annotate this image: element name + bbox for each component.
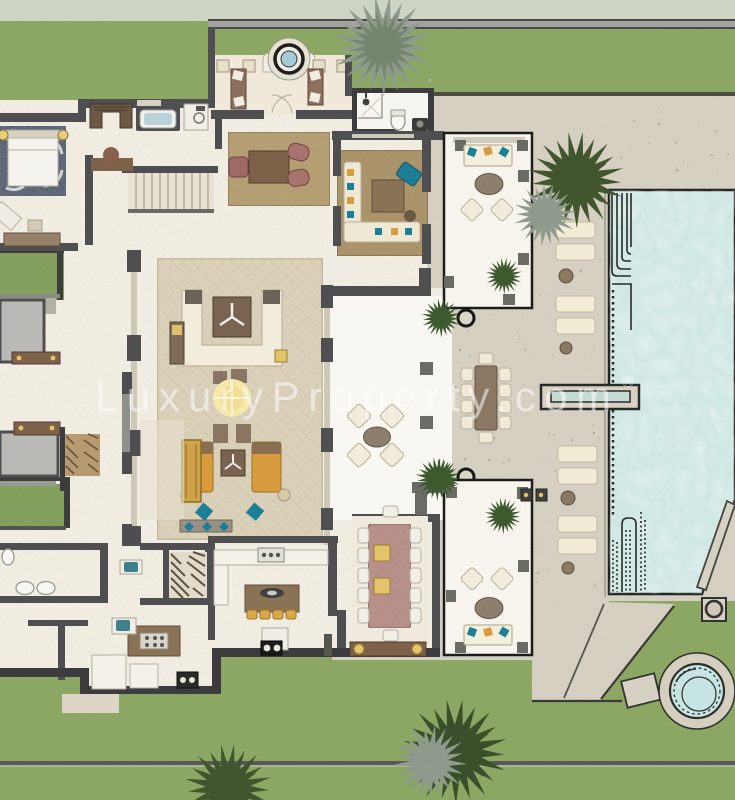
svg-text:®: ® xyxy=(622,374,634,391)
svg-text:LuxuryProperty.com: LuxuryProperty.com xyxy=(95,373,611,420)
